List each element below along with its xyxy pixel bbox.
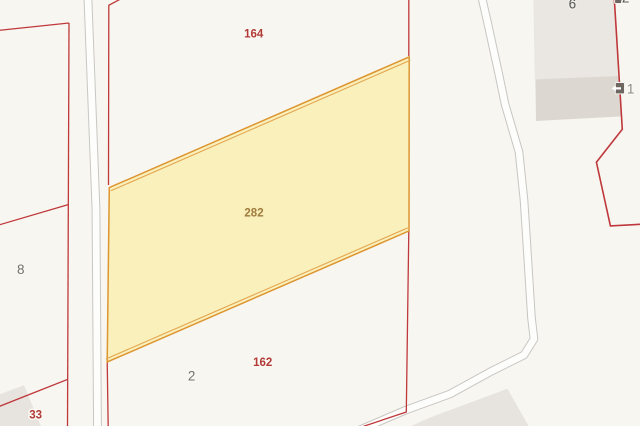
svg-text:8: 8 — [17, 262, 25, 277]
svg-text:164: 164 — [244, 28, 264, 40]
svg-text:162: 162 — [253, 357, 272, 369]
svg-text:2: 2 — [188, 368, 196, 383]
svg-text:2: 2 — [622, 0, 630, 6]
svg-text:6: 6 — [569, 0, 577, 12]
svg-text:1: 1 — [627, 81, 635, 96]
svg-text:33: 33 — [29, 409, 42, 421]
svg-text:282: 282 — [244, 207, 263, 219]
